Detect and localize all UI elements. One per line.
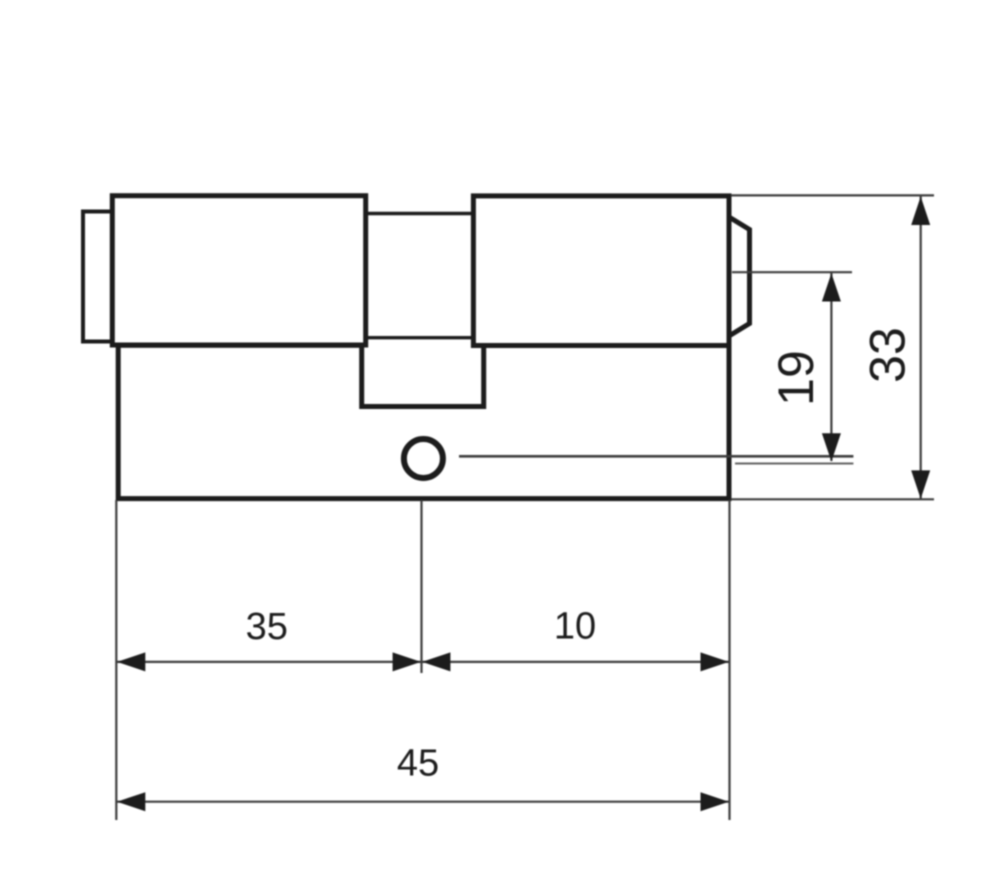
svg-text:19: 19 [768, 350, 824, 406]
svg-text:45: 45 [397, 743, 439, 785]
svg-text:10: 10 [554, 606, 596, 648]
svg-text:33: 33 [860, 327, 916, 383]
svg-text:35: 35 [246, 606, 288, 648]
